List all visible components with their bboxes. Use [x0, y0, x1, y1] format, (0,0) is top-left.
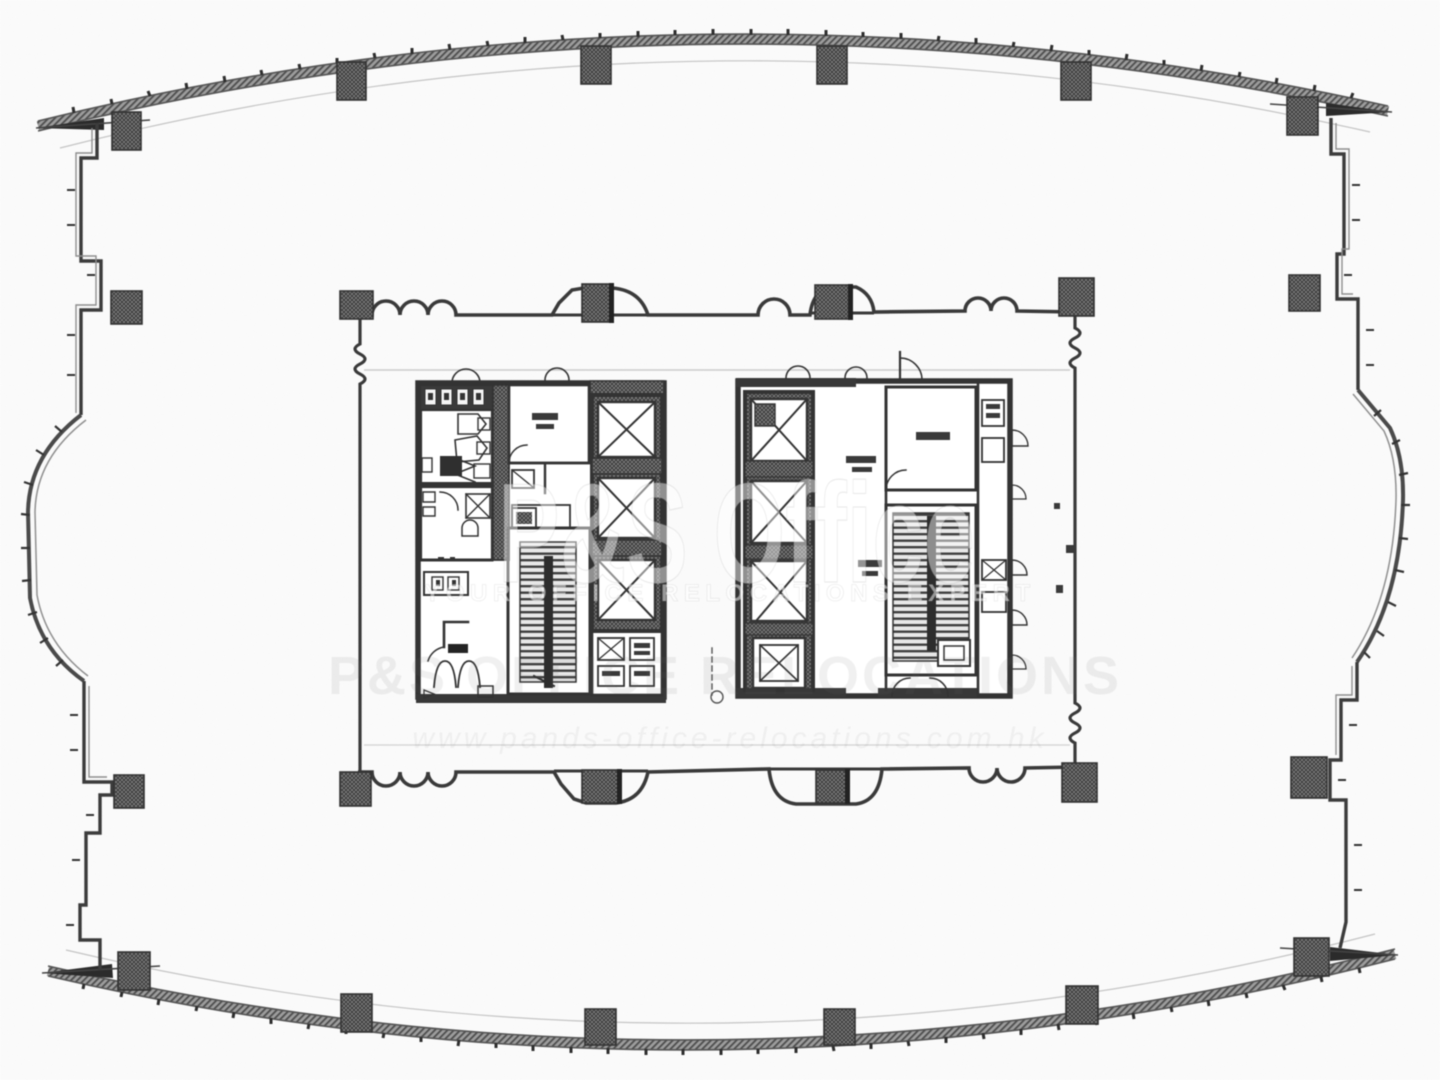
svg-text:P&S OFFICE RELOCATIONS: P&S OFFICE RELOCATIONS — [328, 646, 1122, 706]
svg-text:www.pands-office-relocations.c: www.pands-office-relocations.com.hk — [412, 722, 1047, 755]
svg-text:YOUR OFFICE RELOCATIONS EXPERT: YOUR OFFICE RELOCATIONS EXPERT — [424, 580, 1035, 607]
